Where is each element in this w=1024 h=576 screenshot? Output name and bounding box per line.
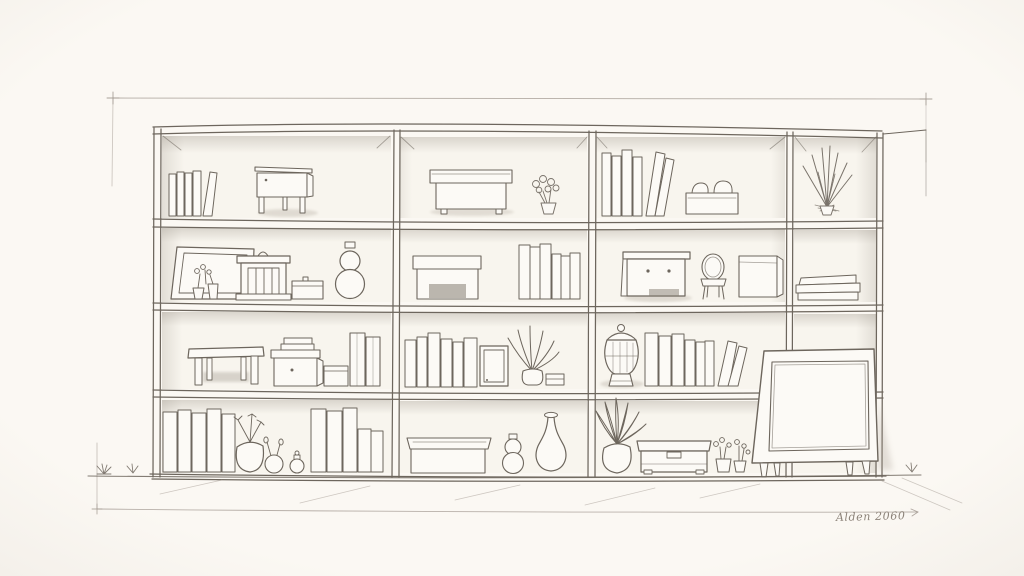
books-left (163, 409, 235, 472)
recess (429, 284, 466, 298)
tall-slabs (350, 333, 380, 386)
cube-box (739, 256, 783, 297)
shelf-sketch: Alden 2060 (0, 0, 1024, 576)
small-box (324, 366, 348, 386)
stacked-books (796, 275, 860, 300)
side-table (255, 167, 313, 213)
lidded-tray (407, 438, 491, 473)
knob (265, 179, 268, 182)
lidded-box (430, 170, 512, 214)
storage-chest (637, 441, 711, 474)
tv-cabinet (752, 349, 893, 477)
mini-dresser (621, 252, 690, 296)
leaning-books (169, 171, 217, 216)
artist-signature: Alden 2060 (835, 509, 906, 524)
small-stack (546, 374, 564, 385)
side-table-shadow (258, 209, 318, 217)
books (602, 150, 674, 216)
box-with-recess (413, 256, 481, 299)
sketch-page: Alden 2060 (0, 0, 1024, 576)
books (405, 333, 477, 387)
shrine-box (236, 252, 291, 300)
cell-r2c4 (796, 275, 860, 300)
small-frame (480, 346, 508, 386)
